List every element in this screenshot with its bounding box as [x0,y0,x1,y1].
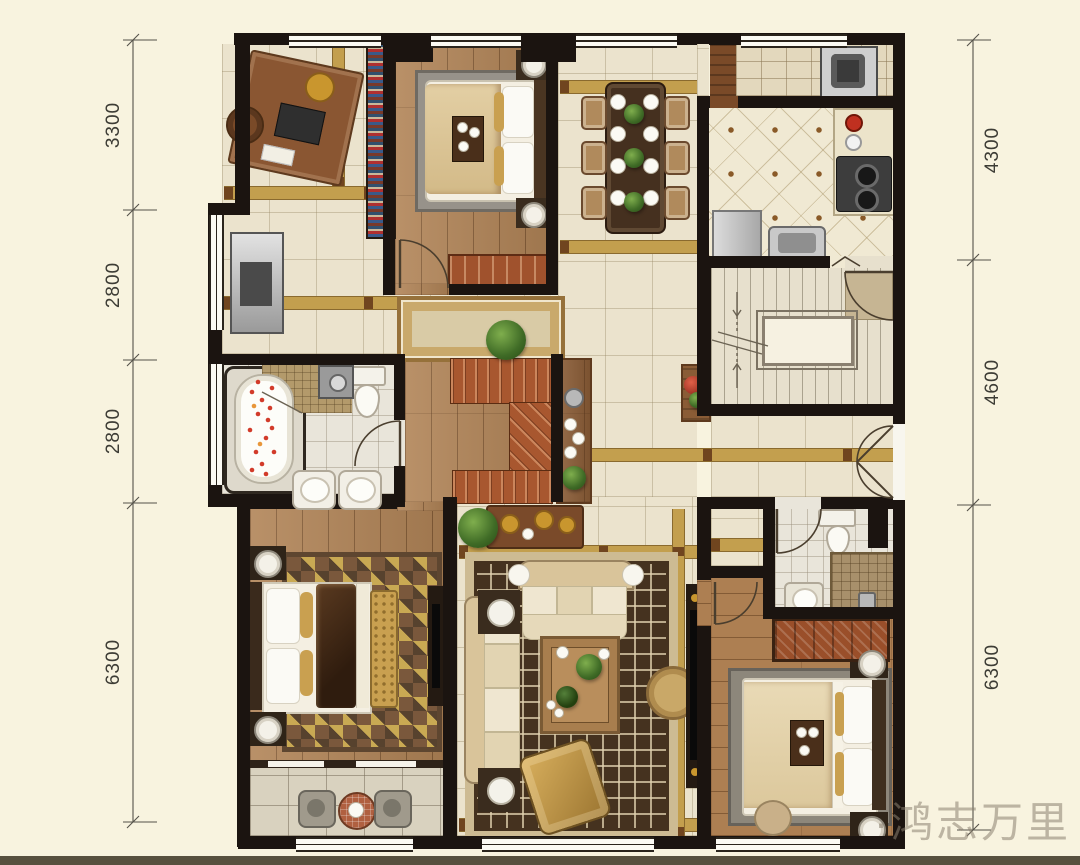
bed-right-bolster [835,752,844,796]
dinner-plate [610,126,626,142]
glass [554,708,564,718]
shower-head [329,374,347,392]
window-terrace [296,837,413,852]
wall-stairwell-left [697,256,711,416]
dining-chair [581,141,607,175]
dim-label-left-3300: 3300 [103,102,125,148]
wall-left-lower [237,502,250,847]
dish [796,727,807,738]
table-plant [624,148,644,168]
table-plant [624,104,644,124]
terrace-door-opening [356,761,416,767]
burner [855,164,879,188]
window-bath [209,364,224,485]
gold-bowl [500,514,520,534]
table-lamp [521,202,547,228]
inner-stair-flight-top [450,358,553,404]
bed-right-pillow [842,686,874,744]
bath-door-opening [394,420,405,466]
floor-inlay-band [560,240,697,254]
pouf [754,800,792,836]
dining-chair [581,96,607,130]
bed-top-pillow [502,142,534,194]
console-plant [562,466,586,490]
table-plant [624,192,644,212]
console-dish [522,528,534,540]
stairwell-void [762,316,854,366]
wall-block [383,33,433,62]
sofa-top-cushion [522,586,557,616]
stairwell-door-opening [845,256,893,268]
red-bowl [845,114,863,132]
wall-duct [868,508,888,548]
dinner-plate [643,190,659,206]
inner-stair-landing [509,402,553,472]
bed-top-pillow [502,86,534,138]
bed-master-pillow [266,648,300,704]
wall-bedroom-dining [546,33,558,295]
wall-block [521,33,576,62]
table-lamp [254,716,282,744]
wall-bath-top [208,354,405,365]
wall-ensuite-left [763,505,775,615]
bed-bench [370,590,398,708]
floor-plan-canvas: 3300 2800 2800 6300 4300 4600 6300 ·鸿志万里 [0,0,1080,865]
bed-master-pillow [266,588,300,644]
table-lamp [858,650,886,678]
inner-stair-flight-bottom [452,470,553,504]
floor-inlay-band [563,448,893,462]
bed-master-headboard [250,582,262,710]
chair-seat [307,799,325,817]
window-study-bay [209,215,224,330]
wall-living-bedroom [697,497,711,849]
paper [261,144,296,166]
sofa-arm-pillow [508,564,530,586]
wall-bedroom3-living [443,497,457,849]
wall-study-bedroom [383,33,395,295]
dinner-plate [643,158,659,174]
kitchen-pass-opening [697,44,709,96]
dispenser-panel [240,262,272,306]
bathtub [234,374,294,484]
table-lamp [254,550,282,578]
dimension-rail-left [123,34,157,828]
water-dispenser [230,232,284,334]
pedestal-sink [338,470,382,510]
dinner-plate [643,126,659,142]
bed-right-pillow [842,748,874,806]
bed-master-blanket [316,584,356,708]
bowl [564,446,577,459]
dim-label-right-4600: 4600 [982,359,1004,405]
dish [799,745,810,756]
sink-bowl [346,477,376,503]
tv-screen [432,604,440,688]
bed-master-sheet [356,584,369,708]
shower-area [830,552,897,611]
dish [469,127,480,138]
dish [457,122,468,133]
bed-master-bolster [300,650,313,696]
side-table-tray [487,599,515,627]
bedroom-top-runner-rug [448,254,555,288]
fridge [712,210,762,262]
hallway-ornate-rug [397,296,565,362]
breakfast-tray [790,720,824,766]
bistro-chair [374,790,412,828]
window-study [289,34,381,48]
sink-bowl [300,477,330,503]
coffee-cup [556,646,569,659]
shower-unit [318,365,354,399]
dim-label-left-2800a: 2800 [103,262,125,308]
breakfast-tray [452,116,484,162]
bed-master-bolster [300,592,313,638]
window-bedroom-top [431,34,521,48]
wall-stairwell-bottom [697,404,905,416]
bedroom-top-door-opening [395,284,449,295]
dining-chair [581,186,607,220]
burner [855,188,879,212]
watermark-text: ·鸿志万里 [874,789,1071,850]
bistro-chair [298,790,336,828]
window-bedroom-right [716,837,840,852]
gold-tray [302,70,338,106]
side-table-tray [487,777,515,805]
watering-can [564,388,584,408]
bed-top-bolster [494,92,504,132]
window-living [482,837,654,852]
laundry-door-slab [710,44,736,96]
entry-door-opening [893,424,905,500]
gold-bowl [558,516,576,534]
sofa-arm-pillow [622,564,644,586]
coffee-table-plant [576,654,602,680]
wall-left-upper [235,33,250,209]
ensuite-door-opening [775,497,821,509]
dinner-plate [610,94,626,110]
living-plant [458,508,498,548]
bowl [564,418,577,431]
dim-label-right-6300: 6300 [982,644,1004,690]
dish [808,727,819,738]
pedestal-sink [292,470,336,510]
bed-top-bolster [494,146,504,186]
dim-label-left-2800b: 2800 [103,408,125,454]
laptop [274,103,326,146]
sink-basin [778,233,816,253]
bistro-dish [348,802,364,818]
dim-label-right-4300: 4300 [982,127,1004,173]
chair-seat [383,799,401,817]
dining-chair [664,141,690,175]
bowl [572,432,585,445]
bedroom-right-door-opening [697,580,711,626]
sofa-top-cushion [592,586,627,616]
sofa-top-cushion [557,586,592,616]
window-dining [576,34,677,48]
wall-ensuite-bottom [763,607,905,619]
gas-stove [836,156,892,212]
window-laundry [741,34,847,48]
bottom-edge-bar [0,856,1080,865]
bedroom-tv-console [428,586,444,706]
bed-right-bolster [835,692,844,736]
coffee-cup [598,648,610,660]
gold-bowl [534,510,554,530]
bed-top-headboard [534,80,546,198]
laundry-door-mark [710,96,738,108]
washer-drum [831,54,865,88]
floor-inlay-band [711,538,763,552]
wall-dining-stairhall [551,354,563,502]
sofa-left-cushion [484,688,520,732]
dim-label-left-6300: 6300 [103,639,125,685]
sofa-left-cushion [484,644,520,688]
washing-machine [820,46,878,98]
terrace-door-opening [268,761,324,767]
kettle [845,134,862,151]
dinner-plate [643,94,659,110]
dish [458,141,469,152]
coffee-table-plant [556,686,578,708]
dining-chair [664,96,690,130]
dining-chair [664,186,690,220]
hall-plant [486,320,526,360]
